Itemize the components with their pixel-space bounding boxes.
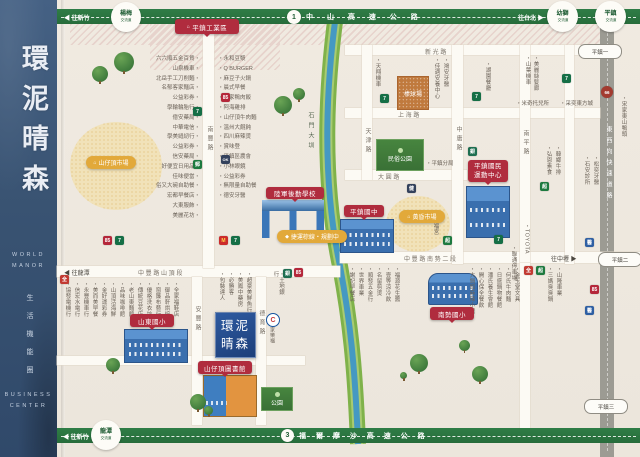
- shop-label: ・湖園餐廳: [484, 61, 490, 91]
- dir-to-zhongli: 往中壢 ▶: [551, 254, 577, 263]
- shandong-elementary-badge: 山東國小: [130, 314, 174, 327]
- shop-label: ・何氏牛肉麵: [504, 266, 510, 322]
- ok-mart-icon: OK: [221, 155, 230, 164]
- pxmart-icon: 全: [524, 266, 533, 275]
- market-icon: ⌂: [407, 214, 410, 220]
- map-brochure: 環泥晴森 WORLD MANOR 生活機能圈 BUSINESS CENTER 石…: [0, 0, 640, 457]
- tree: [459, 340, 470, 351]
- shop-label: ・采奕東方城: [560, 99, 602, 107]
- shop-label: ・壹等涼冷飲: [384, 266, 390, 314]
- project-site: 環泥 晴森: [215, 312, 256, 358]
- 85c-cafe-icon: 85: [294, 268, 303, 277]
- shop-label: ・聯通停車場: [510, 245, 516, 283]
- expressway-shield: 66: [601, 86, 613, 98]
- bank-icon: 銀: [468, 147, 477, 156]
- shop-label: ・鴻安牙醫: [442, 57, 448, 91]
- seven-eleven-icon: 7: [562, 74, 571, 83]
- shop-label: ・宋家東山鴨頭: [620, 95, 626, 139]
- shop-label: ・美鳳中藥房: [236, 271, 242, 313]
- junior-high-badge: 平鎮國中: [344, 205, 384, 217]
- youshi-interchange: 幼獅 交流道: [547, 1, 578, 32]
- exit-pingzhen-2: 平鎮二: [598, 252, 640, 267]
- evening-market-label: 黃昏市場: [413, 212, 437, 221]
- site-name-line1: 環泥: [221, 317, 250, 335]
- shop-label: ・品味咖啡館: [118, 281, 124, 327]
- industrial-zone-badge: ⌂ 平鎮工業區: [175, 19, 239, 34]
- interchange-suffix: 交流道: [101, 436, 112, 440]
- sports-center-line2: 運動中心: [474, 171, 502, 180]
- freeway-1-name: 中 山 高 速 公 路: [306, 12, 424, 22]
- clinic-icon: 醫: [585, 238, 594, 247]
- shop-label: ・名留剪燙: [375, 266, 381, 314]
- shop-label: ・韓鄉牛排: [554, 145, 560, 175]
- shop-label: ・三媽臭臭鍋: [546, 266, 552, 302]
- dir-to-hsinchu-bottom: ◀ 往新竹: [63, 432, 89, 441]
- seven-eleven-icon: 7: [472, 92, 481, 101]
- shop-label: ・超豪美鮮魚行: [245, 271, 251, 313]
- dir-to-longtan: ◀ 往龍潭: [64, 268, 90, 277]
- dir-to-hsinchu-top: ◀ 往新竹: [64, 13, 90, 22]
- interchange-suffix: 交流道: [605, 18, 616, 22]
- shop-label: ・日盛鍋物餐館: [495, 266, 501, 322]
- shop-label: ・包裝達人: [218, 271, 224, 313]
- shop-label: ・米奇托兒所: [516, 99, 558, 107]
- freeway-3-name: 福 爾 摩 沙 高 速 公 路: [299, 431, 429, 441]
- shop-label: ・福源花生醬: [393, 266, 399, 314]
- shop-label: ・開心保全餐飲: [477, 266, 483, 322]
- supermarket-icon: 超: [536, 266, 545, 275]
- shop-label: ・世界車業: [357, 266, 363, 314]
- 85c-cafe-icon: 85: [103, 236, 112, 245]
- supermarket-icon: 超: [443, 236, 452, 245]
- post-office-icon: 郵: [193, 160, 202, 169]
- tree: [400, 372, 407, 379]
- sports-center-badge: 平鎮國民 運動中心: [468, 160, 508, 182]
- shop-label: ・山隆車業: [555, 266, 561, 302]
- shop-label: ・弘恩素食: [545, 145, 551, 175]
- mcdonalds-icon: M: [219, 236, 228, 245]
- shop-label: ・必勝客: [227, 271, 233, 313]
- shop-label: ・山頂活海鮮: [109, 281, 115, 327]
- exit-pingzhen-3: 平鎮三: [584, 399, 628, 414]
- bank-icon: 銀: [283, 269, 292, 278]
- carrefour-icon: C: [266, 313, 280, 327]
- pingzhen-interchange: 平鎮 交流道: [595, 1, 626, 32]
- shop-label: ・順發五金行: [366, 266, 372, 314]
- tree: [204, 406, 213, 415]
- market-icon: ⌂: [93, 160, 96, 166]
- sports-center-line1: 平鎮國民: [474, 162, 502, 171]
- hilltop-market-badge: ⌂ 山仔頂市場: [86, 156, 136, 169]
- shop-label: ・土地銀行: [272, 271, 283, 299]
- 85c-cafe-icon: 85: [590, 285, 599, 294]
- site-name-line2: 晴森: [221, 335, 250, 353]
- hilltop-market-label: 山仔頂市場: [99, 158, 129, 167]
- seven-eleven-icon: 7: [380, 94, 389, 103]
- tree: [472, 366, 488, 382]
- fitness-icon: 健: [407, 184, 416, 193]
- mrt-diamond-icon: ◆: [285, 234, 289, 240]
- tree: [92, 66, 108, 82]
- shop-label: ・永豐機車行: [82, 281, 88, 327]
- army-school-badge: 陸軍後勤學校: [266, 187, 324, 199]
- industrial-zone-label: 平鎮工業區: [192, 22, 227, 32]
- shop-label: ・石安診所: [583, 155, 589, 185]
- seven-eleven-icon: 7: [193, 107, 202, 116]
- evening-market-badge: ⌂ 黃昏市場: [399, 210, 445, 223]
- shop-label: ・謝記早餐店: [348, 266, 354, 314]
- seven-eleven-icon: 7: [115, 236, 124, 245]
- tree: [106, 358, 120, 372]
- freeway-3-shield: 3: [281, 429, 294, 442]
- freeway-1-shield: 1: [287, 10, 301, 24]
- shop-label: ・潘氏養生會館: [486, 266, 492, 322]
- dir-to-taipei: 往台北 ▶: [518, 13, 544, 22]
- interchange-suffix: 交流道: [121, 18, 132, 22]
- library-badge: 山仔頂圖書館: [198, 361, 252, 374]
- tree: [293, 88, 305, 100]
- shop-label: ・協發電機行: [64, 281, 70, 327]
- longtan-interchange: 龍潭 交流道: [91, 420, 121, 450]
- shop-label: ・信宏水電行: [73, 281, 79, 327]
- mrt-planned-badge: ◆ 捷運棕線・規劃中: [277, 230, 347, 243]
- map-places: ・協發電機行・信宏水電行・永豐機車行・美而美早餐・金好運彩券・山頂活海鮮・品味咖…: [0, 0, 640, 457]
- supermarket-icon: 超: [540, 182, 549, 191]
- tree: [274, 96, 292, 114]
- seven-eleven-icon: 7: [231, 236, 240, 245]
- shop-label: ・美而美早餐: [91, 281, 97, 327]
- shop-label: ・TOYOTA: [523, 223, 529, 255]
- interchange-suffix: 交流道: [557, 18, 568, 22]
- yangmei-interchange: 楊梅 交流道: [111, 2, 141, 32]
- factory-icon: ⌂: [187, 24, 191, 30]
- nanshi-elementary-badge: 南勢國小: [430, 307, 474, 320]
- shop-label: ・美麗絲髮廊: [532, 55, 538, 91]
- 85c-cafe-icon: 85: [221, 93, 230, 102]
- shop-label: ・金好運彩券: [100, 281, 106, 327]
- tree: [410, 354, 428, 372]
- seven-eleven-icon: 7: [494, 235, 503, 244]
- tree: [114, 52, 134, 72]
- shop-label: ・天翔機車: [374, 57, 380, 89]
- clinic-icon: 醫: [585, 306, 594, 315]
- shop-label: ・山葉機車: [524, 55, 530, 85]
- shop-label: ・松奕牙醫: [592, 155, 598, 185]
- carrefour-glyph: C: [270, 317, 275, 324]
- mrt-planned-label: 捷運棕線・規劃中: [291, 232, 339, 241]
- shop-label: ・佳適安養中心: [433, 57, 439, 99]
- exit-pingzhen-1: 平鎮一: [578, 44, 622, 59]
